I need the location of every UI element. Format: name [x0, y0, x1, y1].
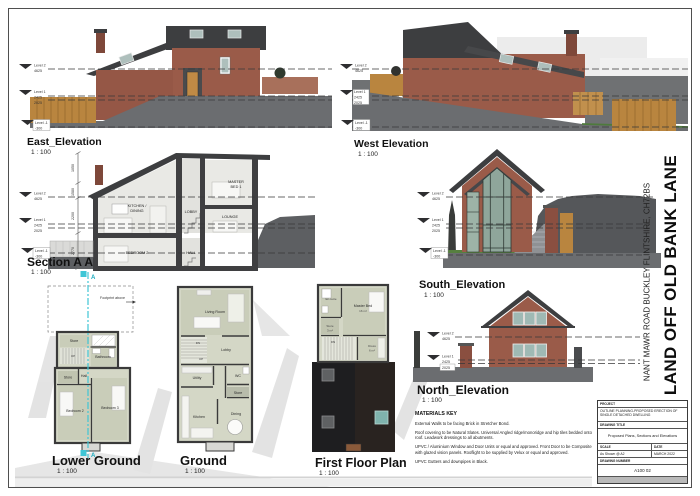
svg-text:2025: 2025 — [432, 229, 440, 233]
materials-key-line: Roof covering to be Natural Slates. Univ… — [415, 430, 593, 441]
room-label: WC — [235, 374, 241, 378]
dim-text: 2200 — [71, 212, 75, 220]
level-value: 2425 — [34, 96, 42, 100]
svg-text:2025: 2025 — [442, 366, 450, 370]
svg-text:Level 2: Level 2 — [442, 332, 454, 336]
room-label: Store — [70, 339, 79, 343]
svg-text:-300: -300 — [433, 254, 440, 258]
first-floor-title: First Floor Plan — [315, 456, 407, 470]
section-marker-icon — [81, 271, 87, 277]
west-elevation-title: West Elevation — [354, 138, 429, 150]
south-side-glazing — [467, 192, 479, 252]
room-label: BED 1 — [231, 185, 242, 189]
materials-key: MATERIALS KEY External Walls to be facin… — [415, 411, 593, 468]
svg-text:2425: 2425 — [442, 360, 450, 364]
project-label: PROJECT — [598, 401, 687, 408]
svg-text:Level -1: Level -1 — [35, 249, 48, 253]
level-value: -300 — [35, 126, 42, 130]
svg-text:4625: 4625 — [432, 197, 440, 201]
room-label: Bathroom — [95, 355, 111, 359]
ground-title: Ground — [180, 453, 227, 468]
level-label: Level -1 — [35, 121, 48, 125]
svg-text:4625: 4625 — [34, 197, 42, 201]
section-aa-drawing: 1050 1580 2200 2770 Level 2 4625 Level 1… — [19, 152, 318, 272]
level-label: Level 1 — [34, 90, 46, 94]
materials-key-line: UPVC Gutters and downpipes in Black. — [415, 459, 593, 464]
svg-text:Level -1: Level -1 — [355, 121, 368, 125]
stair-label: DN — [331, 340, 335, 344]
drawing-sheet: Level 2 4625 Level 1 2425 2025 Level -1 … — [0, 0, 700, 496]
ground-plan-drawing: Living Room Lobby DN UP Utility WC Store… — [178, 287, 252, 451]
room-label: LOBBY — [185, 210, 198, 214]
footprint-note: Footprint above — [100, 296, 125, 300]
section-level-markers: Level 2 4625 Level 1 2425 2025 Level -1 … — [19, 192, 50, 259]
ff-stairs — [322, 337, 356, 360]
room-label: BEDROOM 2 — [126, 251, 149, 255]
svg-text:Level 1: Level 1 — [34, 218, 46, 222]
first-floor-scale: 1 : 100 — [319, 470, 339, 477]
g-porch — [206, 442, 234, 451]
south-gate — [560, 213, 573, 253]
svg-text:4625: 4625 — [442, 337, 450, 341]
south-elevation-drawing: Level 2 4625 Level 1 2425 2025 Level -1 … — [417, 149, 661, 268]
section-aa-scale: 1 : 100 — [31, 269, 51, 276]
north-lower-windows — [513, 344, 547, 357]
west-chimney — [566, 32, 577, 56]
room-area: 6 m² — [369, 349, 375, 353]
svg-text:Level -1: Level -1 — [433, 249, 446, 253]
north-post — [414, 331, 420, 368]
south-glazing — [483, 168, 511, 252]
section-roof-flat — [176, 153, 270, 160]
project-value: OUTLINE PLANNING-PROPOSED ERECTION OF SI… — [598, 408, 687, 422]
room-label: Bedroom 2 — [66, 409, 84, 413]
east-rear-roof — [166, 26, 266, 50]
dining-table — [228, 420, 243, 435]
east-elevation-title: East_Elevation — [27, 136, 102, 148]
drawing-number-label: DRAWING NUMBER — [598, 458, 687, 465]
room-label: LOUNGE — [222, 215, 239, 219]
svg-text:2025: 2025 — [34, 229, 42, 233]
rooflight — [322, 416, 334, 428]
north-elevation-scale: 1 : 100 — [422, 397, 442, 404]
svg-text:Level 1: Level 1 — [432, 218, 444, 222]
ground-scale: 1 : 100 — [185, 468, 205, 475]
north-upper-windows — [513, 312, 547, 325]
west-right-fence — [612, 99, 676, 131]
north-post — [574, 347, 582, 368]
lower-ground-title: Lower Ground — [52, 453, 141, 468]
lower-ground-scale: 1 : 100 — [57, 468, 77, 475]
materials-key-heading: MATERIALS KEY — [415, 411, 593, 417]
room-label: KITCHEN / — [128, 204, 148, 208]
svg-text:-300: -300 — [355, 126, 362, 130]
room-label: Kitchen — [193, 415, 205, 419]
dim-text: 2770 — [71, 247, 75, 255]
lg-lightwell — [92, 335, 115, 346]
level-value: 4625 — [34, 69, 42, 73]
south-brick-pier — [545, 207, 558, 253]
title-block-footer — [598, 477, 687, 483]
stair-label: UP — [71, 354, 75, 358]
project-title: LAND OFF OLD BANK LANE — [661, 150, 679, 400]
room-label: Dining — [231, 412, 241, 416]
south-tree — [448, 200, 456, 255]
date-value: MARCH 2022 — [652, 451, 677, 457]
drawing-number-value: A100 02 — [598, 465, 687, 477]
south-elevation-title: South_Elevation — [419, 279, 505, 291]
scale-date-values: As Shown @ A2 MARCH 2022 — [598, 451, 687, 458]
scale-label: SCALE — [598, 444, 652, 450]
room-label: Store — [234, 391, 243, 395]
scale-date-labels: SCALE DATE — [598, 444, 687, 451]
lg-stoop — [82, 443, 100, 451]
section-aa-title: Section A A — [27, 255, 93, 269]
east-rooflight — [190, 30, 203, 38]
lower-ground-plan-drawing: Footprint above — [48, 271, 136, 459]
level-value: 2025 — [34, 101, 42, 105]
svg-text:2425: 2425 — [432, 224, 440, 228]
east-rooflight — [119, 53, 134, 65]
svg-text:Level 2: Level 2 — [34, 192, 46, 196]
stair-label: UP — [199, 357, 203, 361]
room-label: MASTER — [228, 180, 244, 184]
dim-text: 1580 — [71, 188, 75, 196]
west-shrub — [391, 66, 401, 76]
section-ground-right — [258, 215, 315, 268]
project-address: NANT MAWR ROAD BUCKLEY FLINTSHIRE, CH72B… — [643, 160, 653, 405]
room-label: Store — [64, 376, 73, 380]
north-level-markers: Level 2 4625 Level 1 2425 2025 — [427, 332, 455, 371]
west-elevation-drawing: Level 2 4625 Level 1 2425 2025 Level -1 … — [340, 22, 688, 131]
west-elevation-scale: 1 : 100 — [358, 151, 378, 158]
west-left-fence — [370, 74, 404, 96]
svg-text:2025: 2025 — [354, 101, 362, 105]
south-level-markers: Level 2 4625 Level 1 2425 2025 Level -1 … — [417, 192, 448, 259]
bed — [369, 292, 384, 312]
room-label: DINING — [130, 209, 143, 213]
svg-text:4625: 4625 — [355, 69, 363, 73]
west-level-markers: Level 2 4625 Level 1 2425 2025 Level -1 … — [340, 64, 370, 131]
rooflight — [322, 369, 334, 381]
drawing-title-label: DRAWING TITLE — [598, 422, 687, 429]
first-floor-plan-drawing: En-suite Master Bed 16 m² Store 3 m² DN … — [312, 285, 395, 452]
svg-text:Level 1: Level 1 — [442, 355, 454, 359]
svg-text:Level 2: Level 2 — [432, 192, 444, 196]
dim-text: 1050 — [71, 164, 75, 172]
drawing-title-value: Proposed Plans, Sections and Elevations — [598, 429, 687, 444]
materials-key-line: External Walls to be facing Brick in Str… — [415, 421, 593, 426]
svg-text:Level 1: Level 1 — [354, 90, 366, 94]
room-label: Lobby — [221, 348, 231, 352]
room-label: Bedroom 3 — [101, 406, 119, 410]
room-label: Utility — [193, 376, 202, 380]
stair-label: DN — [196, 341, 200, 345]
scale-value: As Shown @ A2 — [598, 451, 652, 457]
drawing-canvas: Level 2 4625 Level 1 2425 2025 Level -1 … — [0, 0, 700, 496]
footprint-outline — [48, 286, 133, 332]
north-elevation-title: North_Elevation — [417, 383, 509, 397]
room-area: 3 m² — [327, 329, 333, 333]
room-label: En-suite — [325, 297, 336, 301]
materials-key-line: UPVC / Aluminium Window and Door Units o… — [415, 444, 593, 455]
sofa — [194, 317, 220, 328]
svg-text:Level 2: Level 2 — [355, 64, 367, 68]
level-label: Level 2 — [34, 64, 46, 68]
date-label: DATE — [652, 444, 664, 450]
svg-text:2425: 2425 — [354, 96, 362, 100]
room-area: 16 m² — [359, 309, 367, 313]
north-brick-pier — [460, 345, 472, 368]
room-label: Living Room — [205, 310, 225, 314]
section-lobby-room — [182, 159, 200, 233]
room-label: HALL — [186, 251, 196, 255]
arrow-icon — [133, 301, 137, 304]
room-label: Store — [326, 324, 334, 328]
north-elevation-drawing: Level 2 4625 Level 1 2425 2025 — [413, 290, 640, 382]
room-label: Hall — [81, 374, 87, 378]
room-label: Master Bed — [354, 304, 372, 308]
east-elevation-drawing: Level 2 4625 Level 1 2425 2025 Level -1 … — [19, 26, 332, 131]
section-marker-letter: A — [91, 275, 96, 281]
east-garden-wall — [262, 77, 318, 94]
east-rooflight — [228, 30, 241, 38]
room-label: Dress — [368, 344, 376, 348]
east-chimney — [96, 31, 105, 53]
svg-text:2425: 2425 — [34, 224, 42, 228]
rooflight — [375, 411, 388, 424]
east-elevation-scale: 1 : 100 — [31, 149, 51, 156]
south-elevation-scale: 1 : 100 — [424, 292, 444, 299]
title-block: PROJECT OUTLINE PLANNING-PROPOSED ERECTI… — [597, 400, 688, 484]
